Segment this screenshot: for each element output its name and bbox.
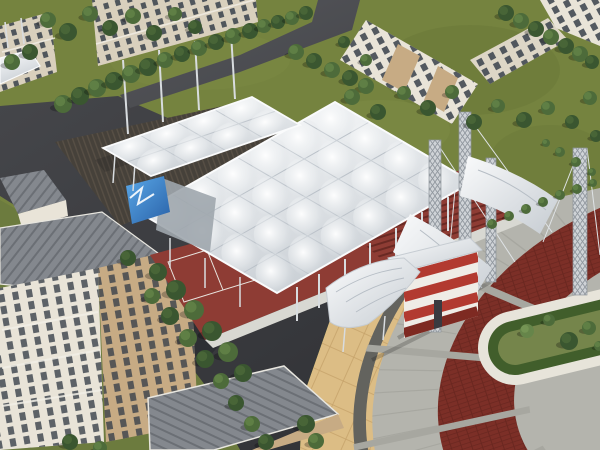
tree-highlight bbox=[209, 35, 218, 44]
tree-highlight bbox=[258, 20, 266, 28]
tree-highlight bbox=[505, 212, 511, 218]
tree-highlight bbox=[583, 322, 591, 330]
tree-highlight bbox=[245, 417, 254, 426]
tree-highlight bbox=[529, 22, 538, 31]
tree-highlight bbox=[41, 13, 50, 22]
tree-highlight bbox=[140, 59, 150, 69]
tree-highlight bbox=[286, 12, 294, 20]
tree-highlight bbox=[345, 90, 354, 99]
tree-highlight bbox=[189, 21, 197, 29]
tree-highlight bbox=[169, 8, 177, 16]
tree-highlight bbox=[72, 88, 82, 98]
tree-highlight bbox=[243, 24, 252, 33]
tree-highlight bbox=[309, 434, 318, 443]
tree-highlight bbox=[343, 71, 352, 80]
tree-highlight bbox=[180, 330, 190, 340]
tree-highlight bbox=[499, 6, 508, 15]
tree-highlight bbox=[197, 351, 207, 361]
tree-highlight bbox=[259, 435, 268, 444]
tree-highlight bbox=[544, 315, 551, 322]
tree-highlight bbox=[123, 66, 133, 76]
tree-highlight bbox=[220, 344, 231, 355]
tree-highlight bbox=[421, 101, 430, 110]
tree-highlight bbox=[175, 47, 184, 56]
tree-highlight bbox=[467, 115, 476, 124]
tree-highlight bbox=[300, 7, 308, 15]
tree-highlight bbox=[60, 24, 70, 34]
tree-highlight bbox=[150, 264, 160, 274]
tree-highlight bbox=[162, 308, 172, 318]
tree-highlight bbox=[488, 220, 494, 226]
tree-highlight bbox=[5, 55, 14, 64]
tree-highlight bbox=[543, 140, 547, 144]
tree-highlight bbox=[522, 205, 528, 211]
tree-highlight bbox=[168, 282, 179, 293]
tree-highlight bbox=[235, 365, 245, 375]
tree-highlight bbox=[539, 198, 545, 204]
tree-highlight bbox=[121, 251, 130, 260]
tree-highlight bbox=[589, 169, 593, 173]
tree-highlight bbox=[158, 53, 167, 62]
tree-highlight bbox=[566, 116, 574, 124]
tree-highlight bbox=[89, 80, 99, 90]
tree-highlight bbox=[103, 21, 112, 30]
tree-highlight bbox=[229, 396, 238, 405]
tree-highlight bbox=[521, 325, 529, 333]
tree-highlight bbox=[339, 37, 346, 44]
tree-highlight bbox=[573, 47, 582, 56]
tree-highlight bbox=[192, 41, 201, 50]
tree-highlight bbox=[572, 158, 578, 164]
tree-highlight bbox=[63, 435, 72, 444]
tree-highlight bbox=[272, 16, 280, 24]
tree-highlight bbox=[544, 30, 553, 39]
tree-highlight bbox=[361, 55, 368, 62]
tree-highlight bbox=[514, 14, 523, 23]
tree-highlight bbox=[595, 342, 600, 348]
tree-highlight bbox=[226, 29, 235, 38]
tree-highlight bbox=[556, 191, 562, 197]
rendering-viewport bbox=[0, 0, 600, 450]
tree-highlight bbox=[186, 302, 197, 313]
tree-highlight bbox=[55, 96, 65, 106]
tree-highlight bbox=[398, 87, 406, 95]
truss-tower bbox=[573, 148, 587, 295]
tree-highlight bbox=[145, 289, 154, 298]
tree-highlight bbox=[307, 54, 316, 63]
tree-highlight bbox=[359, 79, 368, 88]
tree-highlight bbox=[214, 374, 223, 383]
tree-highlight bbox=[371, 105, 380, 114]
tree-highlight bbox=[298, 416, 308, 426]
tree-highlight bbox=[542, 102, 550, 110]
tree-highlight bbox=[289, 45, 298, 54]
tree-highlight bbox=[556, 148, 562, 154]
tree-highlight bbox=[492, 100, 500, 108]
tree-highlight bbox=[591, 131, 598, 138]
scene-canvas bbox=[0, 0, 600, 450]
tree-highlight bbox=[106, 73, 116, 83]
tree-highlight bbox=[573, 185, 579, 191]
tree-highlight bbox=[517, 113, 526, 122]
tree-highlight bbox=[561, 333, 571, 343]
tree-highlight bbox=[147, 26, 156, 35]
tree-highlight bbox=[126, 9, 135, 18]
tree-highlight bbox=[23, 45, 32, 54]
tree-highlight bbox=[94, 442, 102, 450]
tree-highlight bbox=[559, 39, 568, 48]
tree-highlight bbox=[590, 180, 594, 184]
tree-highlight bbox=[586, 56, 594, 64]
tree-highlight bbox=[83, 7, 92, 16]
tree-highlight bbox=[584, 92, 592, 100]
tree-highlight bbox=[325, 63, 334, 72]
tree-highlight bbox=[204, 323, 215, 334]
tree-highlight bbox=[446, 86, 454, 94]
